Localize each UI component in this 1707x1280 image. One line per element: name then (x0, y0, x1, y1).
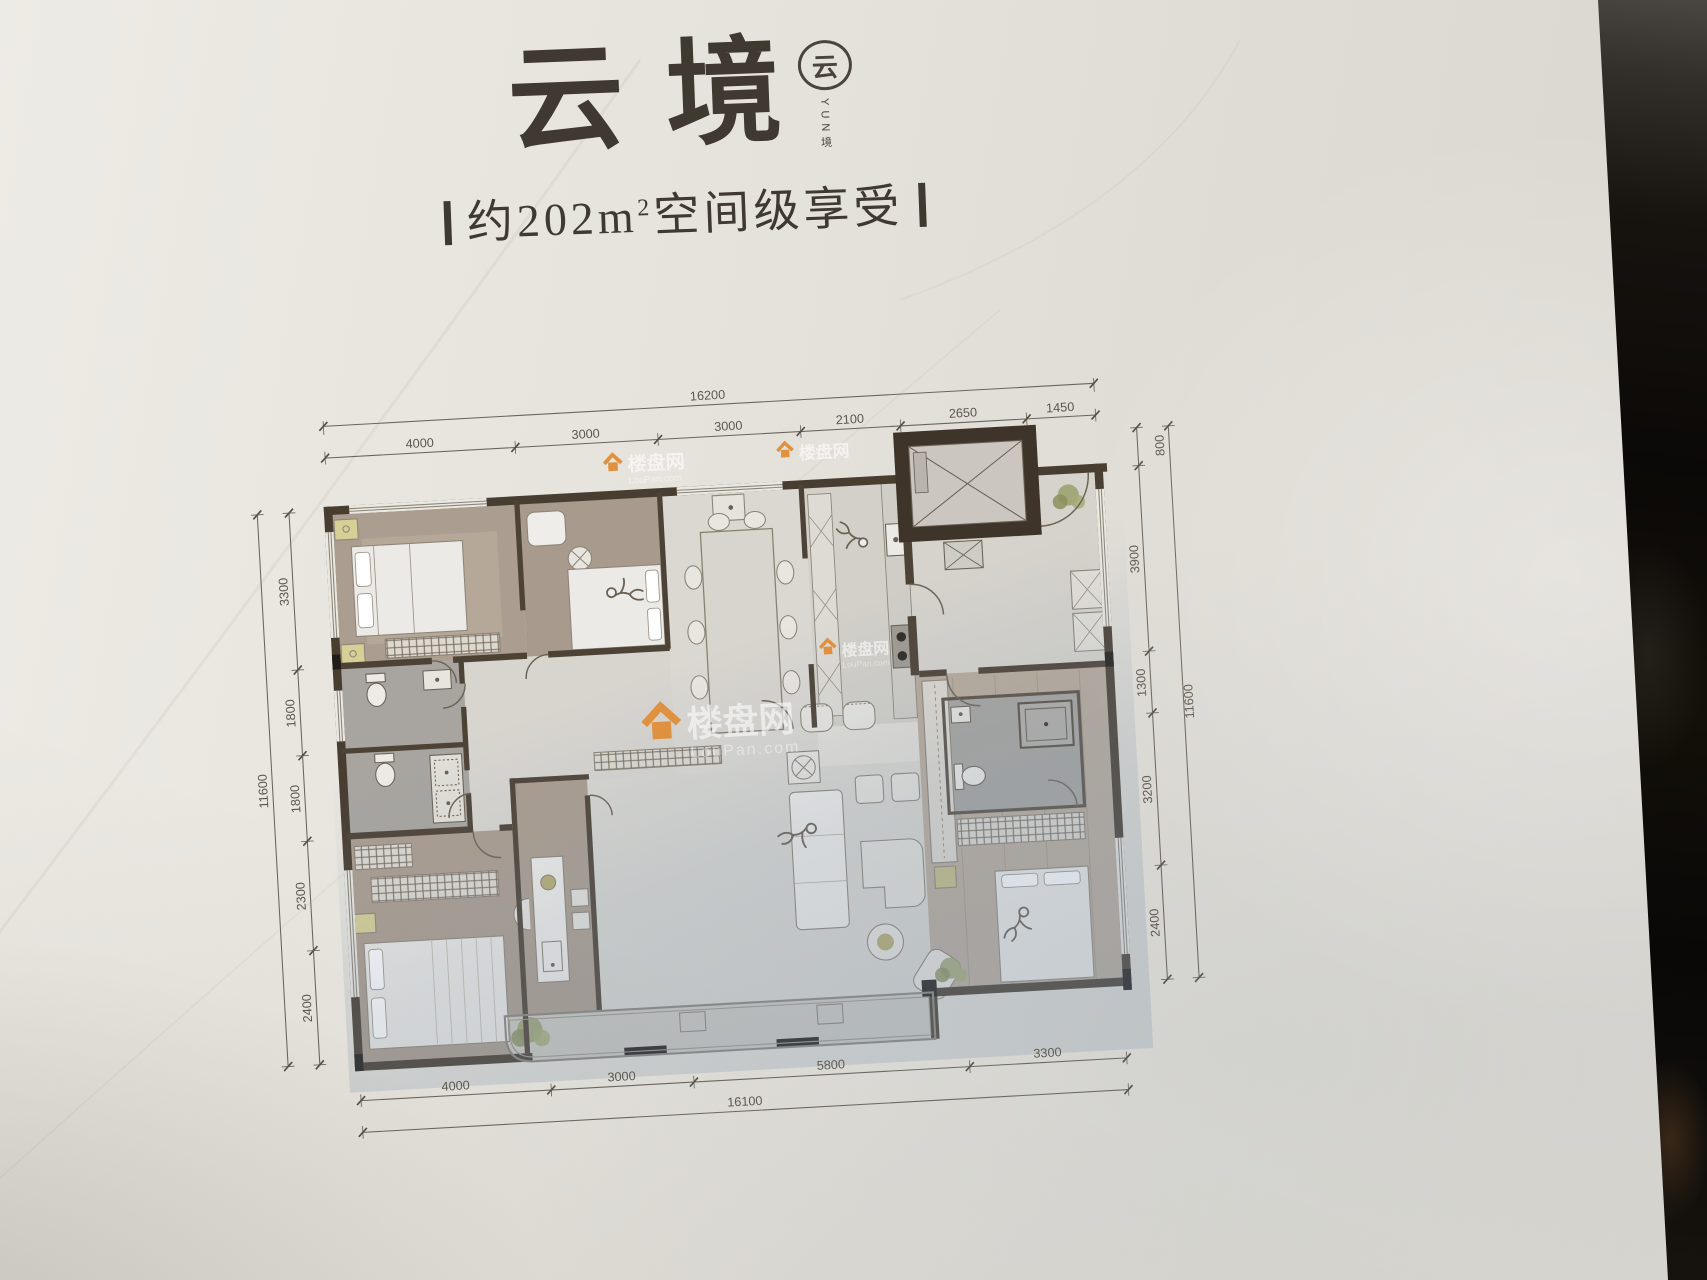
dim-left-total: 11600 (255, 774, 271, 809)
subtitle-prefix: 约202 (466, 192, 599, 248)
dim-left-1: 1800 (283, 699, 299, 728)
dim-right-4: 2400 (1147, 908, 1163, 937)
dim-right-3: 3200 (1140, 775, 1156, 804)
dim-top-1: 3000 (571, 426, 600, 442)
dim-right-1: 3900 (1127, 545, 1143, 574)
floor-plan: 楼盘网 LouPan.com 楼盘网 楼盘网 LouPan.com 楼盘网 Lo… (144, 278, 1314, 1239)
dim-left-0: 3300 (276, 577, 292, 606)
dim-bottom-total: 16100 (727, 1094, 763, 1110)
dim-bottom-3: 3300 (1033, 1045, 1062, 1061)
logo-caption: YUN境 (816, 98, 834, 153)
subtitle-unit: m (597, 191, 639, 243)
dim-right-0: 800 (1152, 434, 1167, 456)
watermark-brand: 楼盘网 (798, 440, 850, 463)
subtitle-suffix: 空间级享受 (653, 181, 905, 242)
dim-bottom-1: 3000 (607, 1069, 636, 1085)
cloud-seal-icon: 云 (797, 39, 853, 91)
dim-left-3: 2300 (293, 882, 309, 911)
subtitle: 约202m2空间级享受 (399, 167, 971, 255)
subtitle-power: 2 (637, 195, 654, 222)
dim-bottom-2: 5800 (816, 1057, 845, 1073)
watermark-brand: 楼盘网 (686, 698, 796, 745)
subtitle-left-bar (443, 201, 452, 245)
dim-left-2: 1800 (288, 785, 304, 814)
dim-right-total: 11600 (1181, 684, 1197, 719)
dim-left-4: 2400 (300, 994, 316, 1023)
dim-right-2: 1300 (1134, 668, 1150, 697)
dim-bottom-0: 4000 (441, 1078, 470, 1094)
photo-background-edge (1560, 0, 1707, 1280)
dim-top-4: 2650 (948, 405, 977, 421)
dim-top-total: 16200 (690, 388, 726, 404)
brand-logo: 云 YUN境 (797, 39, 861, 153)
dim-top-5: 1450 (1046, 400, 1075, 416)
subtitle-right-bar (918, 183, 927, 227)
dim-top-2: 3000 (714, 418, 743, 434)
dim-top-0: 4000 (405, 436, 434, 452)
dim-top-3: 2100 (835, 412, 864, 428)
floor-plan-brochure-photo: 云境 云 YUN境 约202m2空间级享受 (0, 0, 1707, 1280)
